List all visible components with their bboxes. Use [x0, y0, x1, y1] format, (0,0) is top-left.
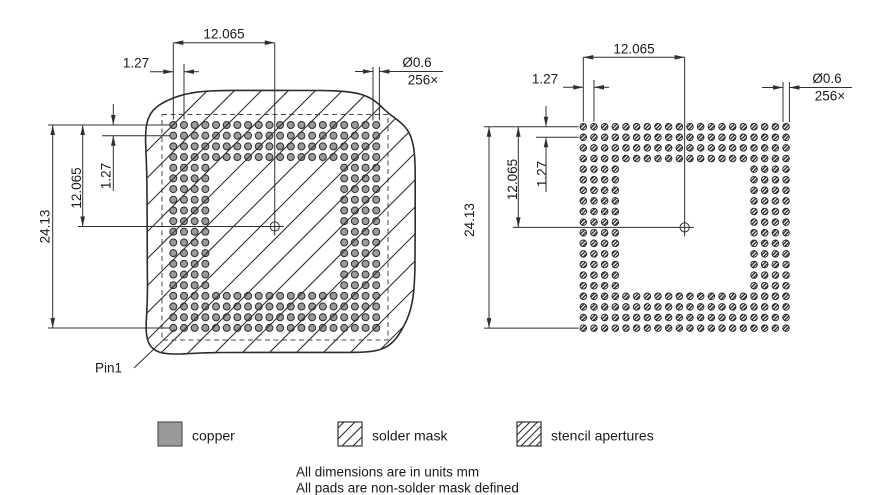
- copper-pad: [373, 196, 380, 203]
- copper-pad: [330, 143, 337, 150]
- copper-pad: [180, 260, 187, 267]
- copper-pad: [277, 143, 284, 150]
- copper-pad: [180, 186, 187, 193]
- copper-pad: [266, 314, 273, 321]
- dim-span-half-side-right: 12.065: [505, 159, 520, 200]
- stencil-aperture: [772, 229, 779, 236]
- stencil-aperture: [772, 251, 779, 258]
- copper-pad: [309, 143, 316, 150]
- copper-pad: [170, 164, 177, 171]
- copper-pad: [202, 271, 209, 278]
- stencil-aperture: [580, 145, 587, 152]
- stencil-aperture: [761, 314, 768, 321]
- copper-pad: [191, 175, 198, 182]
- copper-pad: [341, 143, 348, 150]
- stencil-aperture: [772, 325, 779, 332]
- stencil-aperture: [772, 282, 779, 289]
- copper-pad: [362, 271, 369, 278]
- copper-pad: [362, 303, 369, 310]
- copper-pad: [351, 260, 358, 267]
- left-view-copper-mask: 12.065 1.27 Ø0.6 256× 24.13 12.065 1.27 …: [0, 27, 752, 379]
- stencil-aperture: [751, 219, 758, 226]
- stencil-aperture: [580, 134, 587, 141]
- copper-pad: [277, 132, 284, 139]
- stencil-aperture: [687, 314, 694, 321]
- stencil-aperture: [612, 198, 619, 205]
- copper-pad: [234, 154, 241, 161]
- stencil-aperture: [601, 325, 608, 332]
- stencil-aperture: [719, 123, 726, 130]
- stencil-aperture: [601, 155, 608, 162]
- stencil-aperture: [644, 145, 651, 152]
- copper-pad: [351, 250, 358, 257]
- stencil-aperture: [783, 325, 790, 332]
- copper-pad: [319, 132, 326, 139]
- copper-pad: [351, 303, 358, 310]
- stencil-aperture: [697, 304, 704, 311]
- copper-pad: [180, 207, 187, 214]
- stencil-aperture: [761, 145, 768, 152]
- stencil-aperture: [591, 134, 598, 141]
- copper-pad: [362, 239, 369, 246]
- copper-pad: [180, 228, 187, 235]
- copper-pad: [351, 143, 358, 150]
- stencil-aperture: [751, 282, 758, 289]
- stencil-aperture: [601, 240, 608, 247]
- copper-pad: [373, 324, 380, 331]
- stencil-aperture: [580, 187, 587, 194]
- stencil-aperture: [580, 282, 587, 289]
- copper-pad: [362, 154, 369, 161]
- copper-pad: [298, 143, 305, 150]
- copper-pad: [170, 132, 177, 139]
- copper-pad: [170, 282, 177, 289]
- copper-pad: [180, 154, 187, 161]
- stencil-aperture: [601, 166, 608, 173]
- copper-pad: [341, 122, 348, 129]
- stencil-aperture: [761, 272, 768, 279]
- stencil-aperture: [591, 229, 598, 236]
- dim-pad-diameter-right: Ø0.6: [812, 71, 841, 86]
- stencil-aperture: [687, 304, 694, 311]
- stencil-aperture: [740, 145, 747, 152]
- copper-pad: [202, 186, 209, 193]
- copper-pad: [277, 122, 284, 129]
- copper-pad: [234, 122, 241, 129]
- copper-pad: [362, 132, 369, 139]
- copper-pad: [341, 282, 348, 289]
- stencil-aperture: [612, 229, 619, 236]
- stencil-aperture: [719, 155, 726, 162]
- stencil-aperture: [676, 123, 683, 130]
- stencil-aperture: [612, 134, 619, 141]
- copper-pad: [223, 324, 230, 331]
- stencil-aperture: [761, 293, 768, 300]
- stencil-aperture: [783, 145, 790, 152]
- stencil-aperture: [687, 134, 694, 141]
- stencil-aperture: [708, 134, 715, 141]
- copper-pad: [362, 207, 369, 214]
- stencil-aperture: [751, 240, 758, 247]
- stencil-aperture: [708, 314, 715, 321]
- stencil-aperture: [783, 251, 790, 258]
- copper-pad: [309, 154, 316, 161]
- copper-pad: [373, 228, 380, 235]
- stencil-aperture: [729, 155, 736, 162]
- copper-pad: [191, 282, 198, 289]
- copper-pad: [309, 303, 316, 310]
- stencil-aperture: [612, 145, 619, 152]
- stencil-aperture: [612, 293, 619, 300]
- stencil-aperture: [601, 198, 608, 205]
- copper-pad: [202, 324, 209, 331]
- stencil-aperture: [761, 251, 768, 258]
- copper-pad: [341, 175, 348, 182]
- copper-pad: [180, 122, 187, 129]
- stencil-aperture: [772, 134, 779, 141]
- stencil-aperture: [644, 293, 651, 300]
- stencil-aperture: [580, 251, 587, 258]
- stencil-aperture: [601, 187, 608, 194]
- stencil-aperture: [708, 293, 715, 300]
- stencil-aperture: [761, 187, 768, 194]
- copper-pad: [362, 186, 369, 193]
- stencil-aperture: [580, 229, 587, 236]
- copper-pad: [373, 250, 380, 257]
- stencil-aperture: [665, 314, 672, 321]
- stencil-aperture: [772, 304, 779, 311]
- stencil-aperture: [644, 134, 651, 141]
- stencil-aperture: [751, 325, 758, 332]
- stencil-aperture: [633, 325, 640, 332]
- stencil-aperture: [655, 123, 662, 130]
- copper-pad: [202, 207, 209, 214]
- stencil-aperture: [580, 261, 587, 268]
- stencil-aperture: [751, 155, 758, 162]
- copper-pad: [351, 271, 358, 278]
- copper-pad: [351, 175, 358, 182]
- copper-pad: [330, 324, 337, 331]
- stencil-aperture: [751, 293, 758, 300]
- stencil-aperture: [772, 176, 779, 183]
- stencil-aperture: [687, 325, 694, 332]
- copper-pad: [341, 260, 348, 267]
- stencil-aperture: [772, 219, 779, 226]
- copper-pad: [330, 292, 337, 299]
- dim-pitch-side-right: 1.27: [535, 161, 550, 187]
- stencil-aperture: [772, 293, 779, 300]
- copper-pad: [309, 314, 316, 321]
- copper-pad: [341, 292, 348, 299]
- stencil-aperture: [761, 176, 768, 183]
- copper-pad: [170, 196, 177, 203]
- stencil-aperture: [612, 240, 619, 247]
- stencil-aperture: [772, 187, 779, 194]
- stencil-aperture: [612, 208, 619, 215]
- stencil-aperture: [591, 155, 598, 162]
- stencil-aperture: [687, 155, 694, 162]
- stencil-aperture: [601, 314, 608, 321]
- stencil-aperture: [591, 166, 598, 173]
- copper-pad: [319, 292, 326, 299]
- copper-pad: [330, 303, 337, 310]
- stencil-aperture: [665, 325, 672, 332]
- copper-pad: [180, 314, 187, 321]
- copper-pad: [298, 314, 305, 321]
- copper-pad: [341, 228, 348, 235]
- stencil-aperture: [580, 166, 587, 173]
- stencil-aperture: [580, 155, 587, 162]
- copper-pad: [351, 282, 358, 289]
- stencil-aperture: [580, 293, 587, 300]
- copper-pad: [298, 154, 305, 161]
- copper-pad: [255, 143, 262, 150]
- copper-pad: [373, 260, 380, 267]
- copper-pad: [319, 122, 326, 129]
- stencil-aperture: [740, 304, 747, 311]
- copper-pad: [287, 314, 294, 321]
- copper-pad: [255, 292, 262, 299]
- stencil-aperture: [761, 325, 768, 332]
- copper-pad: [266, 303, 273, 310]
- copper-pad: [180, 271, 187, 278]
- stencil-aperture: [783, 282, 790, 289]
- stencil-aperture: [783, 293, 790, 300]
- copper-pad: [351, 218, 358, 225]
- copper-pad: [298, 122, 305, 129]
- stencil-aperture: [644, 314, 651, 321]
- stencil-aperture: [591, 272, 598, 279]
- copper-pad: [373, 154, 380, 161]
- stencil-aperture: [591, 176, 598, 183]
- stencil-aperture: [601, 208, 608, 215]
- stencil-aperture: [601, 272, 608, 279]
- stencil-aperture: [580, 272, 587, 279]
- copper-pad: [373, 122, 380, 129]
- copper-pad: [234, 314, 241, 321]
- dim-span-half-top-left: 12.065: [203, 27, 244, 42]
- stencil-aperture: [761, 123, 768, 130]
- copper-pad: [362, 218, 369, 225]
- stencil-aperture: [644, 155, 651, 162]
- stencil-aperture: [655, 134, 662, 141]
- stencil-aperture: [783, 240, 790, 247]
- stencil-aperture: [761, 261, 768, 268]
- stencil-aperture: [761, 166, 768, 173]
- stencil-aperture: [740, 314, 747, 321]
- copper-pad: [362, 324, 369, 331]
- copper-pad: [191, 164, 198, 171]
- stencil-aperture: [761, 229, 768, 236]
- stencil-aperture: [665, 155, 672, 162]
- legend-swatch-stencil-apertures: [517, 422, 541, 446]
- stencil-aperture: [665, 145, 672, 152]
- dim-span-half-side-left: 12.065: [69, 167, 84, 208]
- copper-pad: [191, 143, 198, 150]
- stencil-aperture: [783, 272, 790, 279]
- copper-pad: [213, 143, 220, 150]
- stencil-aperture: [580, 176, 587, 183]
- stencil-aperture: [633, 314, 640, 321]
- stencil-aperture: [687, 293, 694, 300]
- stencil-aperture: [783, 155, 790, 162]
- dim-pitch-side-left: 1.27: [99, 163, 114, 189]
- stencil-aperture: [772, 123, 779, 130]
- stencil-aperture: [719, 293, 726, 300]
- copper-pad: [362, 292, 369, 299]
- stencil-aperture: [676, 325, 683, 332]
- stencil-aperture: [612, 325, 619, 332]
- stencil-aperture: [719, 314, 726, 321]
- stencil-aperture: [729, 145, 736, 152]
- stencil-aperture: [772, 314, 779, 321]
- copper-pad: [170, 186, 177, 193]
- copper-pad: [266, 143, 273, 150]
- stencil-aperture: [623, 145, 630, 152]
- stencil-aperture: [612, 219, 619, 226]
- stencil-aperture: [623, 155, 630, 162]
- copper-pad: [287, 122, 294, 129]
- stencil-aperture: [591, 251, 598, 258]
- dim-pitch-top-left: 1.27: [123, 56, 149, 71]
- copper-pad: [255, 324, 262, 331]
- stencil-aperture: [740, 293, 747, 300]
- stencil-aperture: [612, 155, 619, 162]
- stencil-aperture: [601, 293, 608, 300]
- stencil-aperture: [719, 304, 726, 311]
- copper-pad: [277, 324, 284, 331]
- stencil-aperture: [761, 219, 768, 226]
- copper-pad: [373, 314, 380, 321]
- stencil-aperture: [601, 145, 608, 152]
- stencil-aperture: [580, 198, 587, 205]
- stencil-aperture: [601, 282, 608, 289]
- stencil-aperture: [697, 314, 704, 321]
- stencil-aperture: [772, 166, 779, 173]
- copper-pad: [330, 132, 337, 139]
- stencil-aperture: [697, 134, 704, 141]
- copper-pad: [351, 314, 358, 321]
- copper-pad: [191, 260, 198, 267]
- copper-pad: [191, 271, 198, 278]
- stencil-aperture: [751, 145, 758, 152]
- copper-pad: [245, 154, 252, 161]
- stencil-aperture: [676, 304, 683, 311]
- stencil-aperture: [740, 325, 747, 332]
- stencil-aperture: [612, 314, 619, 321]
- stencil-aperture: [580, 314, 587, 321]
- copper-pad: [341, 239, 348, 246]
- copper-pad: [223, 132, 230, 139]
- copper-pad: [170, 303, 177, 310]
- copper-pad: [341, 132, 348, 139]
- stencil-aperture: [751, 304, 758, 311]
- copper-pad: [191, 228, 198, 235]
- copper-pad: [266, 132, 273, 139]
- copper-pad: [351, 132, 358, 139]
- copper-pad: [255, 314, 262, 321]
- bga-land-pattern-drawing: 12.065 1.27 Ø0.6 256× 24.13 12.065 1.27 …: [0, 0, 880, 495]
- copper-pad: [170, 271, 177, 278]
- stencil-aperture: [591, 219, 598, 226]
- stencil-aperture: [729, 123, 736, 130]
- stencil-aperture: [591, 282, 598, 289]
- stencil-aperture: [591, 198, 598, 205]
- copper-pad: [351, 324, 358, 331]
- copper-pad: [191, 292, 198, 299]
- stencil-aperture: [740, 123, 747, 130]
- copper-pad: [213, 122, 220, 129]
- stencil-aperture: [751, 134, 758, 141]
- copper-pad: [180, 303, 187, 310]
- copper-pad: [245, 122, 252, 129]
- stencil-aperture: [772, 272, 779, 279]
- stencil-aperture: [633, 134, 640, 141]
- stencil-aperture: [687, 145, 694, 152]
- copper-pad: [287, 292, 294, 299]
- stencil-aperture: [601, 176, 608, 183]
- dim-span-full-right: 24.13: [462, 203, 477, 237]
- stencil-aperture: [740, 155, 747, 162]
- stencil-aperture: [708, 145, 715, 152]
- stencil-aperture: [676, 145, 683, 152]
- copper-pad: [330, 122, 337, 129]
- stencil-aperture: [580, 208, 587, 215]
- copper-pad: [309, 324, 316, 331]
- stencil-aperture: [708, 325, 715, 332]
- stencil-aperture: [601, 229, 608, 236]
- copper-pad: [202, 132, 209, 139]
- stencil-aperture: [601, 134, 608, 141]
- copper-pad: [170, 239, 177, 246]
- stencil-aperture: [719, 325, 726, 332]
- copper-pad: [309, 132, 316, 139]
- stencil-aperture: [783, 219, 790, 226]
- stencil-aperture: [655, 325, 662, 332]
- copper-pad: [191, 250, 198, 257]
- stencil-aperture: [655, 314, 662, 321]
- stencil-aperture: [676, 293, 683, 300]
- copper-pad: [180, 292, 187, 299]
- stencil-aperture: [612, 282, 619, 289]
- stencil-aperture: [740, 134, 747, 141]
- copper-pad: [191, 196, 198, 203]
- copper-pad: [170, 292, 177, 299]
- stencil-aperture: [783, 229, 790, 236]
- stencil-aperture: [655, 155, 662, 162]
- copper-pad: [213, 314, 220, 321]
- copper-pad: [223, 143, 230, 150]
- stencil-aperture: [676, 155, 683, 162]
- copper-pad: [351, 196, 358, 203]
- legend-label-stencil-apertures: stencil apertures: [551, 428, 654, 444]
- copper-pad: [180, 175, 187, 182]
- stencil-aperture: [783, 304, 790, 311]
- stencil-aperture: [772, 145, 779, 152]
- stencil-aperture: [772, 198, 779, 205]
- copper-pad: [287, 154, 294, 161]
- copper-pad: [277, 303, 284, 310]
- copper-pad: [245, 143, 252, 150]
- stencil-aperture: [633, 155, 640, 162]
- right-dimension-lines: [484, 55, 852, 328]
- copper-pad: [373, 143, 380, 150]
- copper-pad: [213, 154, 220, 161]
- stencil-aperture: [697, 325, 704, 332]
- note-units: All dimensions are in units mm: [296, 465, 479, 480]
- stencil-aperture: [591, 208, 598, 215]
- stencil-aperture: [591, 187, 598, 194]
